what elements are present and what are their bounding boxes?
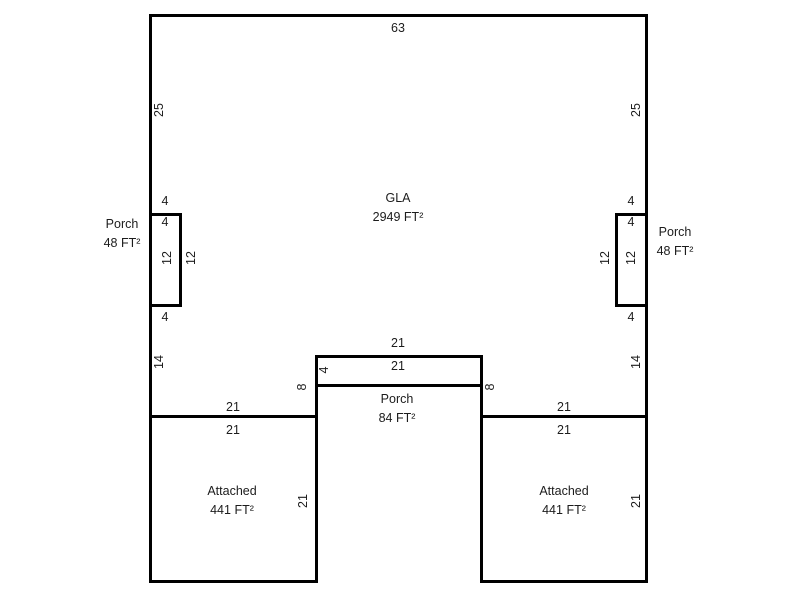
dimension-label: 21 xyxy=(557,424,571,437)
dimension-label: 12 xyxy=(161,251,174,265)
floor-plan-sketch: 6325254412124441212414142121488212121212… xyxy=(0,0,800,600)
bottom-porch-name: Porch xyxy=(379,390,416,409)
main-bottom-left-wall xyxy=(149,415,317,418)
right-porch-size: 48 FT² xyxy=(657,242,694,261)
dimension-label: 4 xyxy=(162,216,169,229)
bottom-porch-label: Porch84 FT² xyxy=(379,390,416,428)
dimension-label: 21 xyxy=(391,360,405,373)
dimension-label: 14 xyxy=(153,355,166,369)
left-porch-name: Porch xyxy=(104,215,141,234)
dimension-label: 25 xyxy=(630,103,643,117)
dimension-label: 21 xyxy=(630,494,643,508)
left-garage-name: Attached xyxy=(207,482,256,501)
gla-size: 2949 FT² xyxy=(373,208,424,227)
left-garage-label: Attached441 FT² xyxy=(207,482,256,520)
right-garage-size: 441 FT² xyxy=(539,501,588,520)
dimension-label: 12 xyxy=(185,251,198,265)
dimension-label: 21 xyxy=(226,424,240,437)
dimension-label: 25 xyxy=(153,103,166,117)
dimension-label: 4 xyxy=(162,311,169,324)
dimension-label: 4 xyxy=(318,367,331,374)
right-garage-bottom-wall xyxy=(480,580,648,583)
right-porch-label: Porch48 FT² xyxy=(657,223,694,261)
dimension-label: 14 xyxy=(630,355,643,369)
gap-left-wall xyxy=(315,355,318,583)
gla-label: GLA2949 FT² xyxy=(373,189,424,227)
dimension-label: 12 xyxy=(599,251,612,265)
dimension-label: 63 xyxy=(391,22,405,35)
dimension-label: 21 xyxy=(297,494,310,508)
dimension-label: 8 xyxy=(296,384,309,391)
dimension-label: 8 xyxy=(484,384,497,391)
dimension-label: 4 xyxy=(628,195,635,208)
right-garage-label: Attached441 FT² xyxy=(539,482,588,520)
dimension-label: 12 xyxy=(625,251,638,265)
right-garage-name: Attached xyxy=(539,482,588,501)
left-porch-size: 48 FT² xyxy=(104,234,141,253)
dimension-label: 21 xyxy=(226,401,240,414)
dimension-label: 4 xyxy=(628,216,635,229)
top-wall xyxy=(149,14,648,17)
bottom-porch-size: 84 FT² xyxy=(379,409,416,428)
dimension-label: 4 xyxy=(628,311,635,324)
dimension-label: 21 xyxy=(391,337,405,350)
left-garage-bottom-wall xyxy=(149,580,317,583)
gla-name: GLA xyxy=(373,189,424,208)
dimension-label: 21 xyxy=(557,401,571,414)
dimension-label: 4 xyxy=(162,195,169,208)
right-porch-name: Porch xyxy=(657,223,694,242)
main-bottom-right-wall xyxy=(480,415,648,418)
left-porch-label: Porch48 FT² xyxy=(104,215,141,253)
left-garage-size: 441 FT² xyxy=(207,501,256,520)
